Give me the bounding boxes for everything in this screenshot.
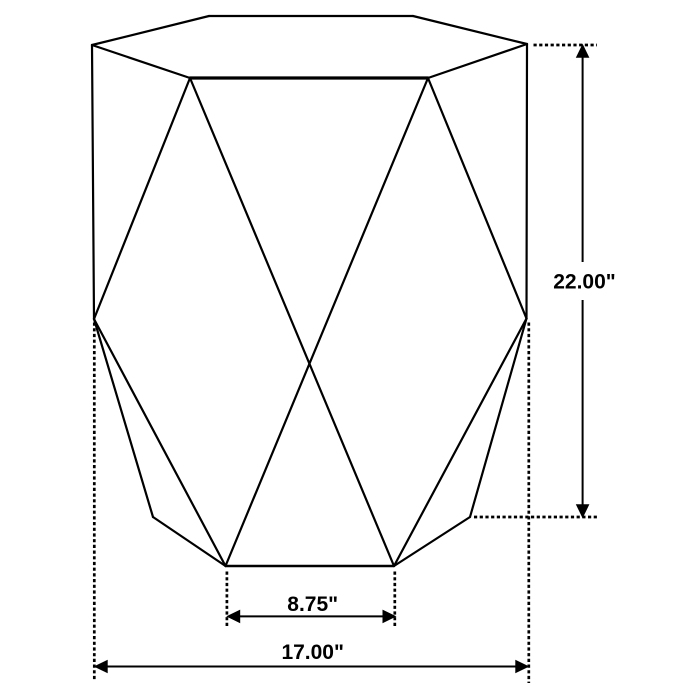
svg-text:22.00": 22.00" xyxy=(553,271,616,294)
svg-text:8.75": 8.75" xyxy=(287,593,338,616)
svg-text:17.00": 17.00" xyxy=(281,641,344,664)
